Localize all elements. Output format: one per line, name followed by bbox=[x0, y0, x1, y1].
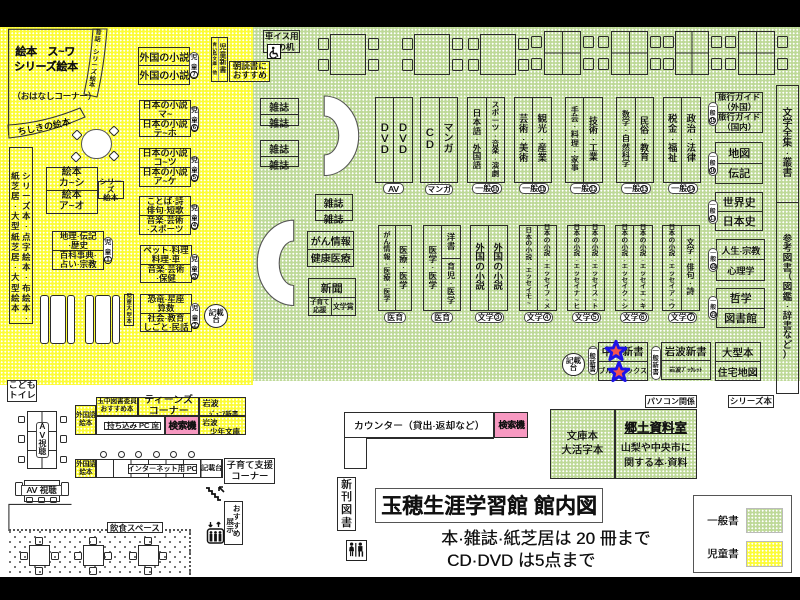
svg-text:ちしきの絵本: ちしきの絵本 bbox=[16, 116, 71, 137]
